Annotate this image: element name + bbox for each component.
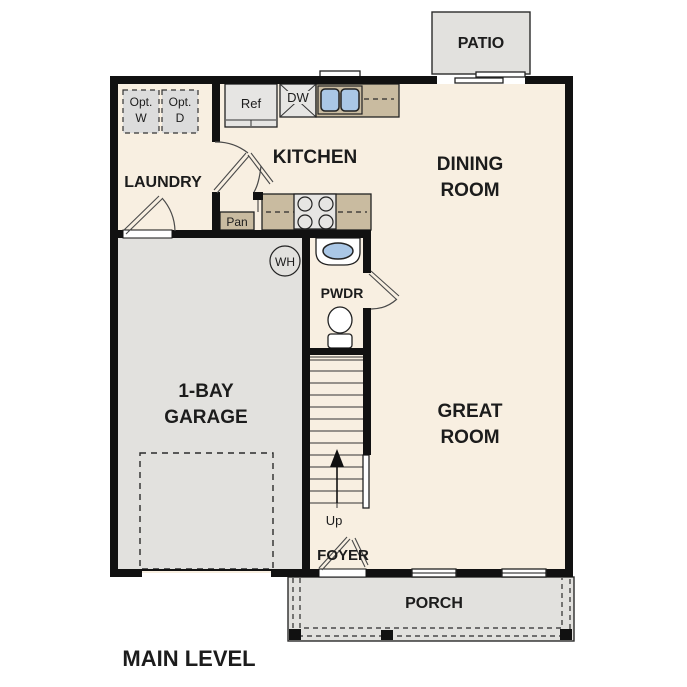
wall-pwdr-bottom (310, 348, 363, 355)
garage-label-line1: 1-BAY (178, 381, 234, 402)
refrigerator-label: Ref (241, 96, 262, 111)
wall-divider-left (110, 230, 123, 238)
porch-post-left (289, 629, 301, 640)
sink-basin-right (341, 89, 359, 111)
wall-bottom-2 (271, 569, 319, 577)
kitchen-label: KITCHEN (273, 147, 357, 168)
opt-washer-line2: W (135, 111, 147, 125)
garage-floor (118, 236, 304, 571)
opt-washer-line1: Opt. (130, 95, 153, 109)
foyer-label: FOYER (317, 547, 369, 564)
wall-bottom-3 (366, 569, 412, 577)
laundry-label: LAUNDRY (124, 174, 202, 191)
front-door-threshold (319, 569, 366, 577)
wall-laundry-right-upper (212, 84, 220, 142)
wall-right (565, 76, 573, 577)
toilet-bowl (328, 307, 352, 333)
porch-post-middle (381, 630, 393, 640)
vanity-basin (323, 243, 353, 259)
wall-bottom-1 (110, 569, 142, 577)
dining-label-line2: ROOM (440, 180, 499, 201)
pwdr-label: PWDR (321, 285, 364, 301)
plan-title: MAIN LEVEL (122, 646, 255, 671)
patio-area: PATIO (432, 12, 530, 74)
wall-left (110, 76, 118, 577)
toilet-tank (328, 334, 352, 348)
garage-label-line2: GARAGE (164, 407, 247, 428)
opt-dryer-line1: Opt. (169, 95, 192, 109)
pantry-label: Pan (226, 215, 247, 229)
laundry-door-threshold (123, 230, 172, 238)
dining-label-line1: DINING (437, 154, 504, 175)
wall-divider-main (172, 230, 371, 238)
porch-label: PORCH (405, 595, 463, 612)
dishwasher-label: DW (287, 90, 309, 105)
opt-dryer-line2: D (176, 111, 185, 125)
wall-pantry-jamb (253, 192, 263, 200)
wall-bottom-5 (546, 569, 573, 577)
floor-plan: PATIO PORCH Ref DW (0, 0, 687, 687)
porch-area: PORCH (288, 577, 574, 641)
great-room-label-line2: ROOM (440, 427, 499, 448)
water-heater-label: WH (275, 255, 295, 269)
wall-pwdr-stair-right (363, 308, 371, 455)
stair-rail (363, 455, 369, 508)
patio-slider-panel-1 (476, 72, 525, 77)
wall-garage-right (302, 238, 310, 569)
wall-bottom-4 (456, 569, 502, 577)
great-room-label-line1: GREAT (437, 401, 502, 422)
patio-slider-panel-2 (455, 78, 503, 83)
porch-post-right (560, 629, 572, 640)
sink-basin-left (321, 89, 339, 111)
patio-label: PATIO (458, 35, 505, 52)
up-label: Up (326, 513, 343, 528)
wall-pwdr-right-upper (363, 238, 371, 273)
